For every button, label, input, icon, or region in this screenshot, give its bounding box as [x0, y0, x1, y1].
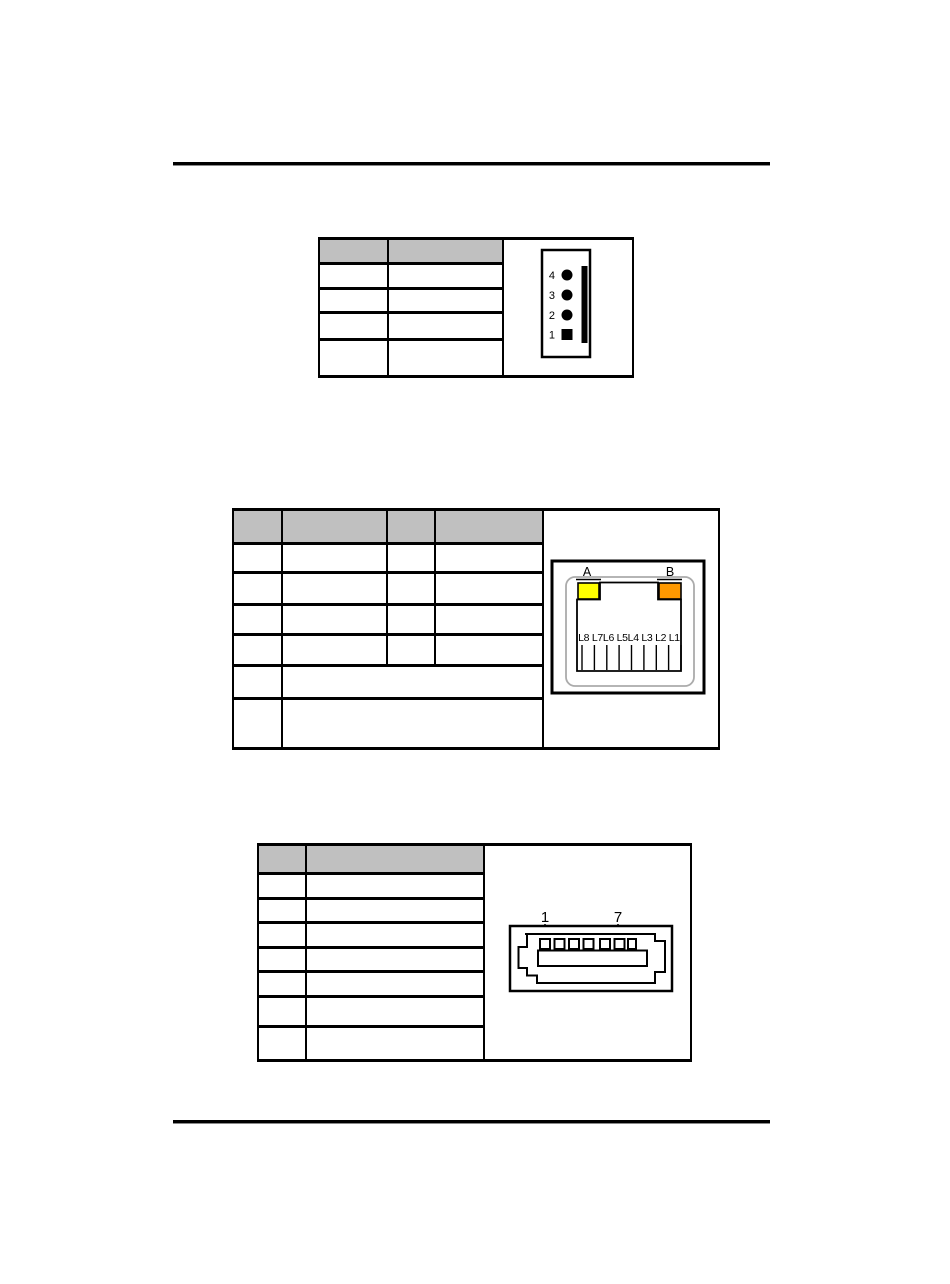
document-page: 4 3 2 1: [0, 0, 950, 1284]
empty-cell: [306, 997, 484, 1027]
empty-cell: [306, 923, 484, 948]
sata-pin-contacts: [540, 939, 636, 949]
pin-3-circle-icon: [562, 290, 573, 301]
header-cell: [319, 239, 388, 264]
empty-cell: [258, 997, 306, 1027]
empty-cell: [233, 699, 282, 749]
empty-cell: [306, 874, 484, 899]
empty-cell: [233, 666, 282, 699]
header-cell: [387, 510, 435, 544]
empty-cell: [306, 1027, 484, 1061]
header-cell: [233, 510, 282, 544]
empty-cell: [282, 544, 387, 573]
led-b-indicator: [659, 583, 681, 599]
connector-blade: [538, 951, 647, 967]
sata-connector-diagram: 1 7: [485, 846, 688, 1058]
empty-cell: [388, 340, 503, 377]
connector-diagram-cell: 4 3 2 1: [503, 239, 633, 377]
connector-diagram-cell: 1 7: [484, 845, 691, 1061]
pin-label-1: 1: [549, 330, 555, 342]
empty-cell: [258, 948, 306, 972]
empty-cell: [258, 1027, 306, 1061]
four-pin-connector-diagram: 4 3 2 1: [504, 240, 630, 370]
sata-table: 1 7: [257, 843, 692, 1062]
led-b-label: B: [666, 565, 674, 579]
empty-cell: [233, 573, 282, 605]
empty-cell: [258, 899, 306, 923]
led-a-label: A: [583, 565, 592, 579]
sata-pin7-label: 7: [614, 909, 622, 926]
header-cell: [388, 239, 503, 264]
empty-cell: [435, 544, 543, 573]
lan-led-table: A B L8 L7L6 L5L4 L3 L2 L1: [232, 508, 720, 750]
connector-key-bar: [582, 266, 588, 343]
footer-rule: [173, 1120, 770, 1124]
empty-cell: [258, 874, 306, 899]
empty-cell: [233, 544, 282, 573]
pin-2-circle-icon: [562, 310, 573, 321]
header-cell: [258, 845, 306, 874]
empty-cell: [388, 289, 503, 313]
empty-cell: [387, 635, 435, 666]
table-row: A B L8 L7L6 L5L4 L3 L2 L1: [233, 510, 719, 544]
merged-empty-cell: [282, 699, 543, 749]
led-a-indicator: [578, 583, 599, 599]
four-pin-header-table: 4 3 2 1: [318, 237, 634, 378]
empty-cell: [319, 340, 388, 377]
empty-cell: [282, 573, 387, 605]
pin-1-square-icon: [562, 329, 573, 340]
empty-cell: [388, 264, 503, 289]
empty-cell: [282, 605, 387, 635]
pin-label-3: 3: [549, 290, 555, 302]
pin-label-4: 4: [549, 270, 555, 282]
empty-cell: [435, 573, 543, 605]
empty-cell: [233, 635, 282, 666]
empty-cell: [258, 972, 306, 997]
empty-cell: [387, 605, 435, 635]
empty-cell: [388, 313, 503, 340]
empty-cell: [319, 264, 388, 289]
table-row: 1 7: [258, 845, 691, 874]
sata-pin1-label: 1: [541, 909, 549, 926]
empty-cell: [319, 313, 388, 340]
header-cell: [282, 510, 387, 544]
pin-4-circle-icon: [562, 270, 573, 281]
empty-cell: [435, 605, 543, 635]
rj45-jack-diagram: A B L8 L7L6 L5L4 L3 L2 L1: [544, 511, 716, 744]
empty-cell: [435, 635, 543, 666]
empty-cell: [306, 948, 484, 972]
empty-cell: [306, 972, 484, 997]
empty-cell: [233, 605, 282, 635]
empty-cell: [387, 573, 435, 605]
lane-labels: L8 L7L6 L5L4 L3 L2 L1: [578, 632, 680, 644]
pin-label-2: 2: [549, 310, 555, 322]
table-row: 4 3 2 1: [319, 239, 633, 264]
empty-cell: [319, 289, 388, 313]
header-cell: [435, 510, 543, 544]
connector-diagram-cell: A B L8 L7L6 L5L4 L3 L2 L1: [543, 510, 719, 749]
empty-cell: [282, 635, 387, 666]
merged-empty-cell: [282, 666, 543, 699]
empty-cell: [387, 544, 435, 573]
empty-cell: [258, 923, 306, 948]
header-rule: [173, 162, 770, 166]
header-cell: [306, 845, 484, 874]
empty-cell: [306, 899, 484, 923]
